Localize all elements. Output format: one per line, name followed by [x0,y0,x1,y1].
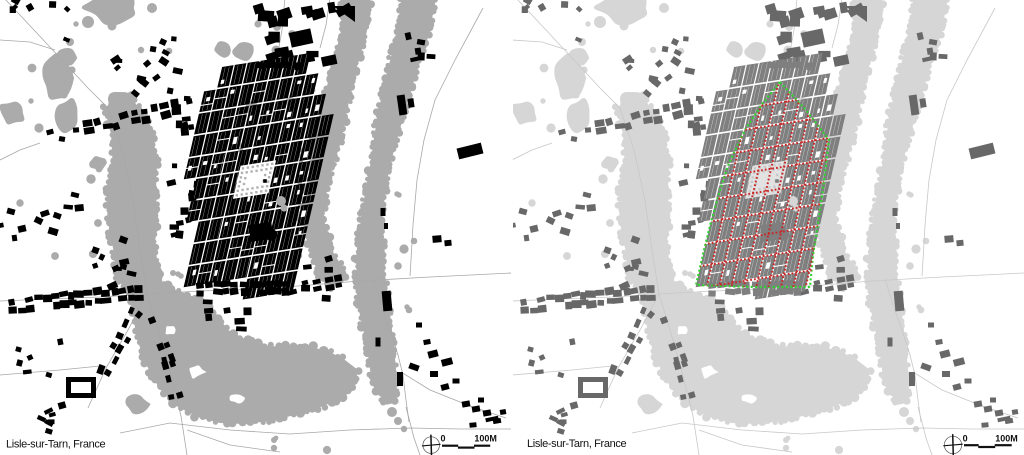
svg-text:100M: 100M [474,434,497,444]
svg-text:Lisle-sur-Tarn, France: Lisle-sur-Tarn, France [6,439,106,451]
svg-text:100M: 100M [995,433,1018,443]
svg-text:0: 0 [963,433,968,443]
svg-text:0: 0 [441,434,446,444]
svg-text:Lisle-sur-Tarn, France: Lisle-sur-Tarn, France [527,438,627,450]
